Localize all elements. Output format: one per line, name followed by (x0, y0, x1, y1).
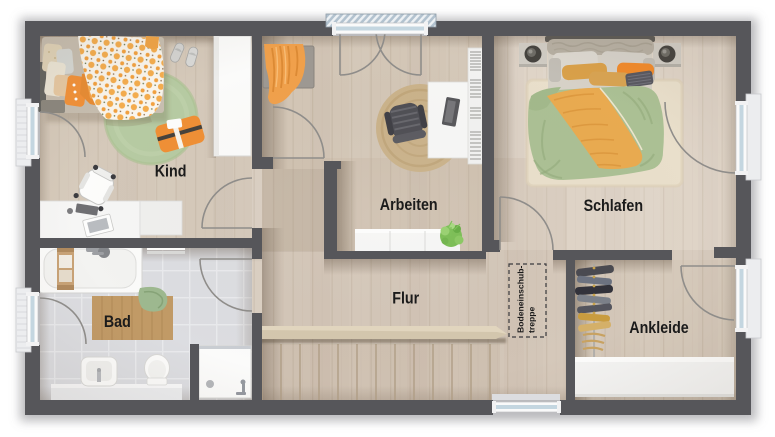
svg-text:Schlafen: Schlafen (584, 197, 643, 215)
svg-text:Bodeneinschub-: Bodeneinschub- (516, 266, 526, 333)
svg-text:treppe: treppe (527, 307, 537, 333)
svg-text:Kind: Kind (155, 163, 187, 181)
svg-text:Arbeiten: Arbeiten (380, 196, 438, 214)
svg-text:Ankleide: Ankleide (629, 319, 689, 337)
svg-text:Bad: Bad (104, 313, 131, 331)
svg-text:Flur: Flur (392, 289, 419, 307)
